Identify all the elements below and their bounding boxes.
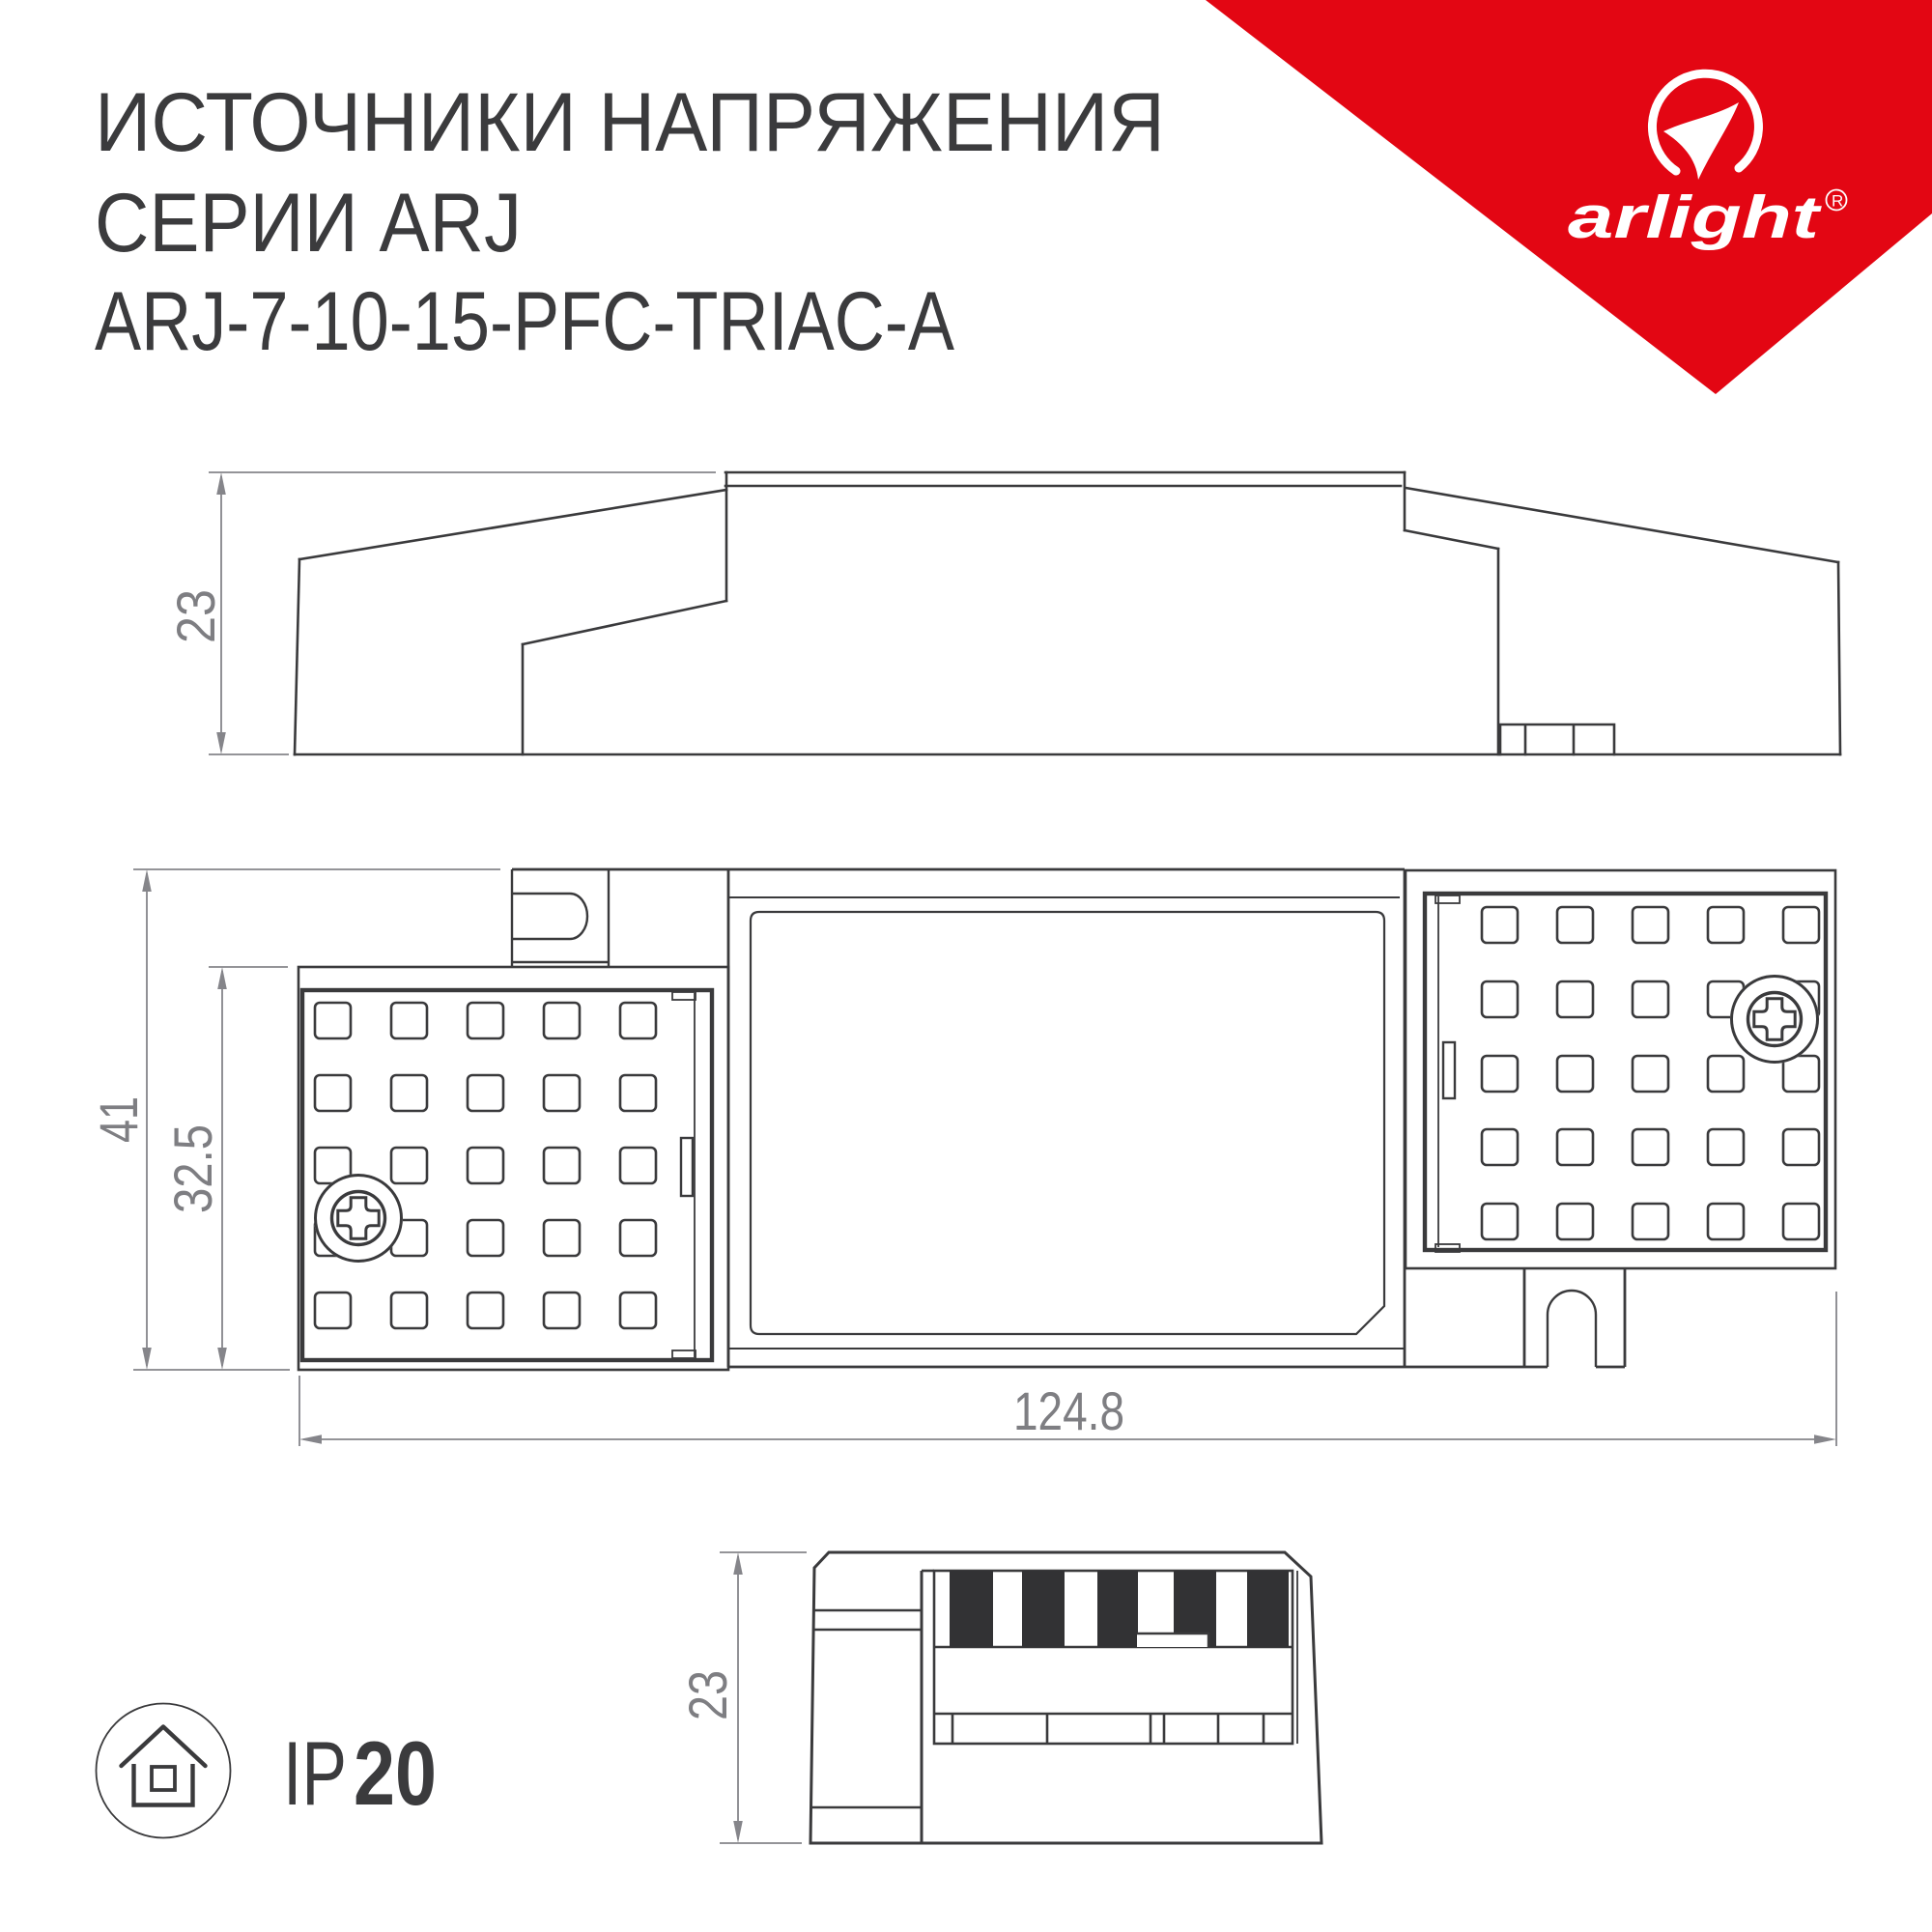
svg-text:IP: IP: [283, 1722, 347, 1824]
svg-text:32.5: 32.5: [162, 1124, 223, 1213]
svg-text:arlight: arlight: [1568, 185, 1822, 251]
svg-text:20: 20: [354, 1722, 437, 1824]
svg-text:R: R: [1832, 192, 1843, 211]
svg-text:41: 41: [88, 1096, 149, 1143]
svg-text:СЕРИИ ARJ: СЕРИИ ARJ: [95, 177, 522, 270]
svg-text:23: 23: [677, 1670, 738, 1720]
svg-text:124.8: 124.8: [1013, 1380, 1124, 1441]
svg-text:ARJ-7-10-15-PFC-TRIAC-A: ARJ-7-10-15-PFC-TRIAC-A: [95, 275, 955, 368]
svg-text:ИСТОЧНИКИ НАПРЯЖЕНИЯ: ИСТОЧНИКИ НАПРЯЖЕНИЯ: [95, 76, 1165, 169]
svg-text:23: 23: [165, 589, 226, 643]
